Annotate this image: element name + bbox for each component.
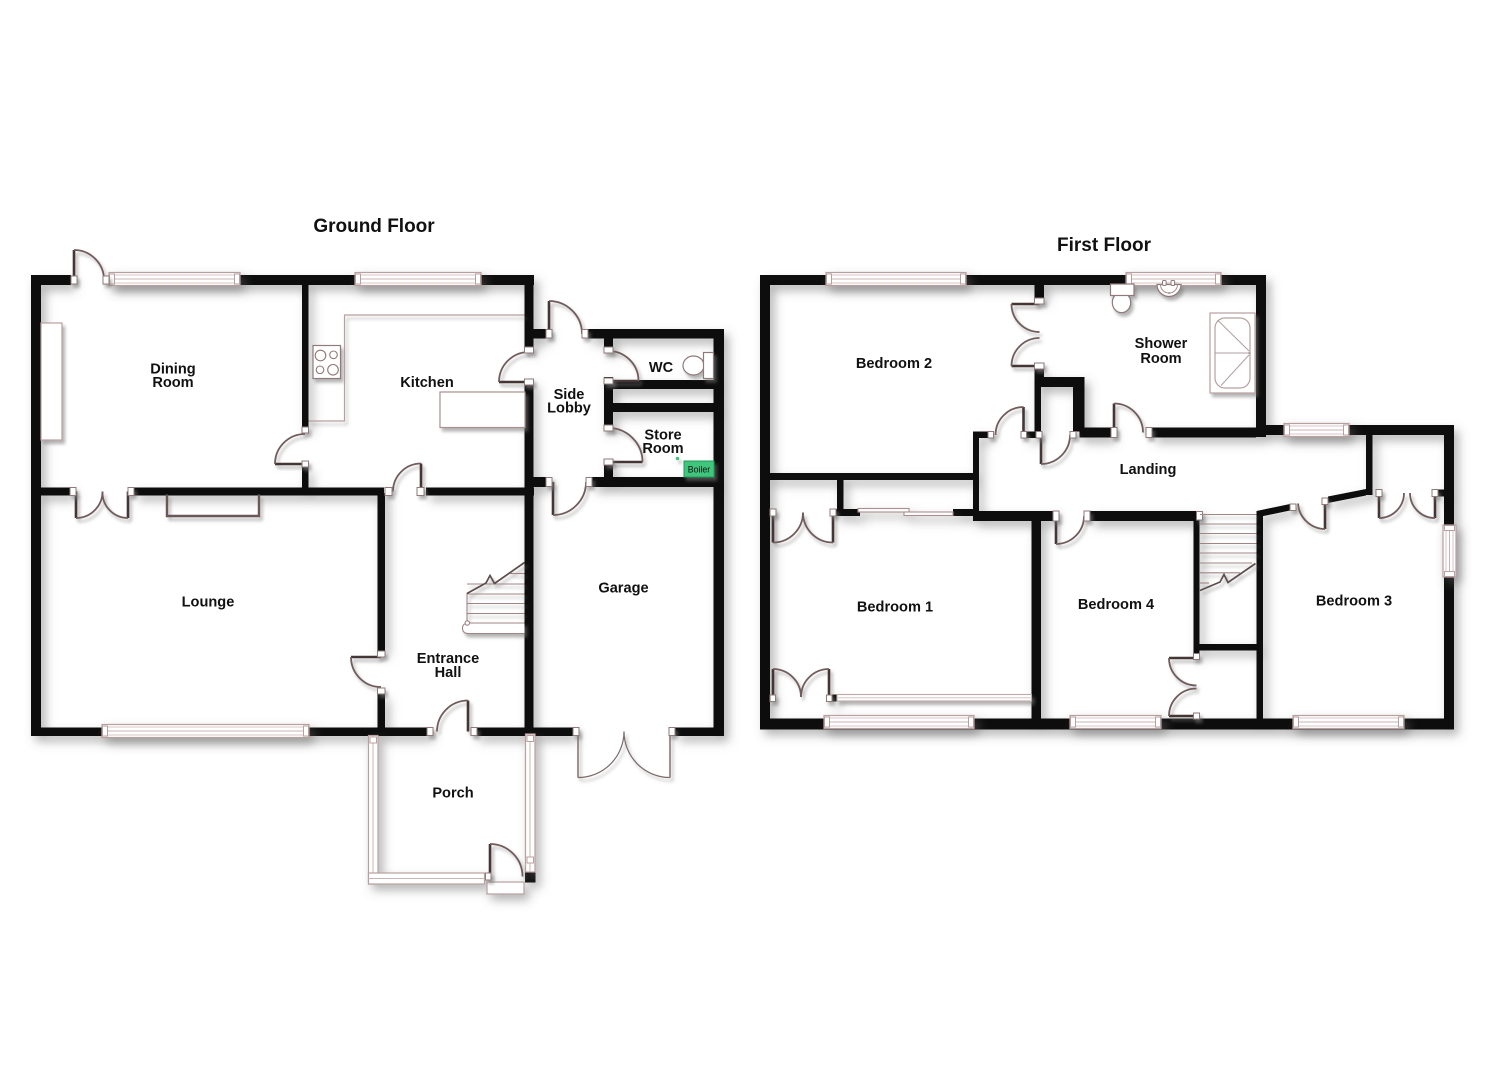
svg-text:Kitchen: Kitchen — [400, 375, 454, 391]
svg-text:Ground Floor: Ground Floor — [313, 216, 435, 237]
svg-text:Shower: Shower — [1135, 336, 1188, 352]
svg-text:Bedroom 4: Bedroom 4 — [1078, 597, 1155, 613]
svg-text:Bedroom 3: Bedroom 3 — [1316, 594, 1392, 610]
svg-text:WC: WC — [649, 360, 674, 376]
svg-text:Porch: Porch — [432, 786, 473, 802]
svg-text:Room: Room — [1140, 351, 1181, 367]
svg-text:Room: Room — [642, 441, 683, 457]
svg-text:Hall: Hall — [435, 665, 462, 681]
svg-text:Landing: Landing — [1120, 462, 1177, 478]
svg-text:Boiler: Boiler — [688, 465, 711, 475]
svg-text:First Floor: First Floor — [1057, 235, 1152, 256]
svg-text:Lobby: Lobby — [547, 401, 592, 417]
svg-text:Bedroom 1: Bedroom 1 — [857, 600, 933, 616]
svg-text:Room: Room — [152, 375, 193, 391]
svg-text:Garage: Garage — [598, 581, 648, 597]
svg-text:Bedroom 2: Bedroom 2 — [856, 356, 932, 372]
svg-text:Lounge: Lounge — [182, 595, 235, 611]
